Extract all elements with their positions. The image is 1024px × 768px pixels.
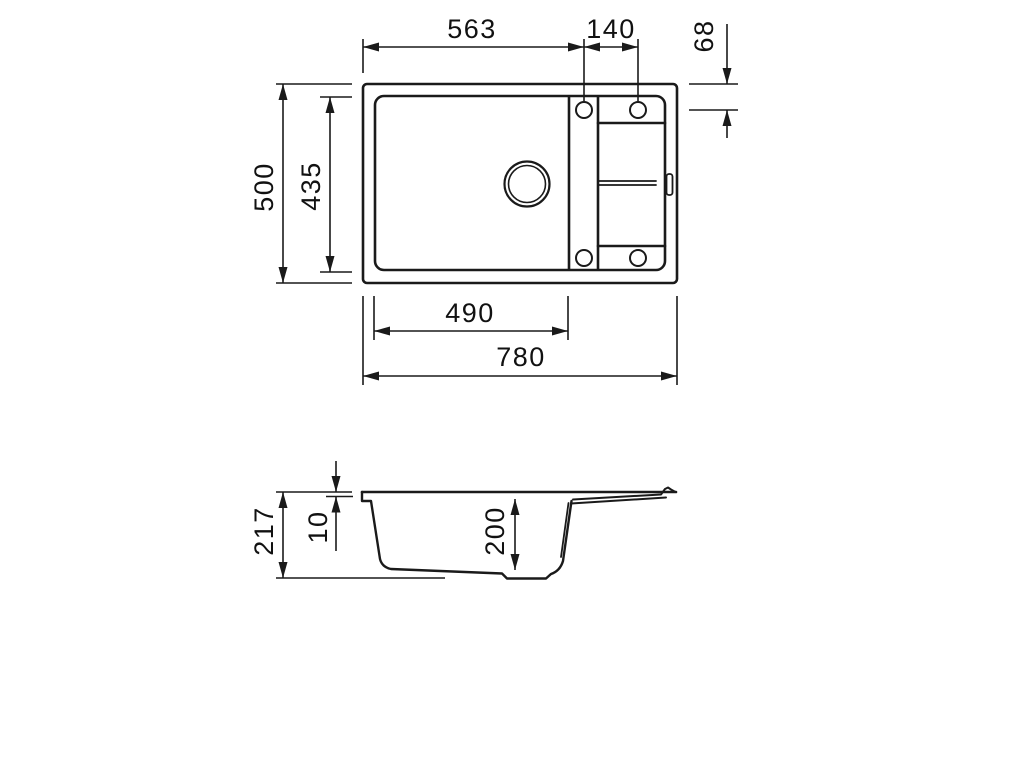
technical-drawing-page: 563 140 68 500 435 4 [0, 0, 1024, 768]
section-view [362, 488, 676, 579]
dim-overall-width-label: 780 [496, 342, 546, 372]
overflow-slot [667, 174, 673, 195]
tap-hole-bottom-left [576, 250, 592, 266]
dim-tap-hole-spacing-label: 140 [586, 14, 636, 44]
sink-technical-drawing: 563 140 68 500 435 4 [0, 0, 1024, 768]
dim-tap-hole-top-offset-label: 68 [689, 19, 719, 52]
section-bowl-profile [362, 492, 572, 579]
dim-inner-depth-label: 435 [296, 161, 326, 211]
dimension-200: 200 [480, 499, 520, 570]
dim-overall-height-label: 217 [249, 506, 279, 556]
dim-rim-thickness-label: 10 [303, 510, 333, 543]
top-view [363, 84, 677, 283]
dim-edge-to-tap-hole-label: 563 [447, 14, 497, 44]
dimension-10: 10 [303, 461, 353, 551]
dimension-68: 68 [689, 19, 738, 138]
dim-bowl-depth-label: 200 [480, 506, 510, 556]
tap-hole-top-right [630, 102, 646, 118]
dimension-780: 780 [363, 296, 677, 385]
dimension-490: 490 [374, 296, 568, 340]
drain-outer-circle [505, 162, 550, 207]
dimension-140: 140 [584, 14, 638, 101]
dim-bowl-width-label: 490 [445, 298, 495, 328]
dim-overall-depth-label: 500 [249, 162, 279, 212]
dimension-435: 435 [296, 97, 352, 272]
drain-inner-circle [509, 166, 546, 203]
tap-hole-bottom-right [630, 250, 646, 266]
tap-hole-top-left [576, 102, 592, 118]
dimension-217: 217 [249, 492, 445, 578]
dimension-563: 563 [363, 14, 584, 101]
